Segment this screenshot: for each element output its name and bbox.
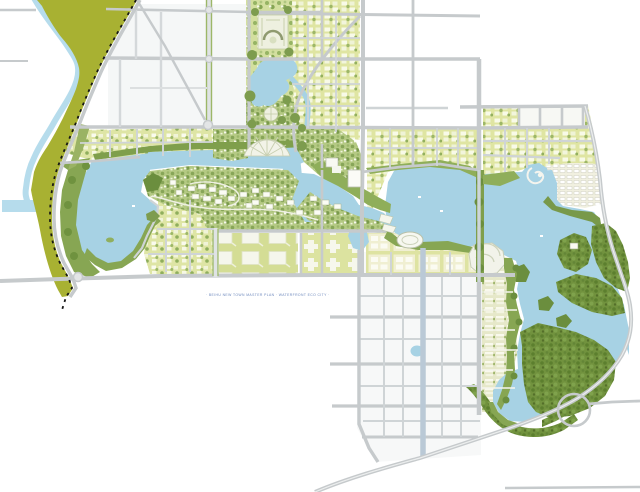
- svg-text:· BEIHU NEW TOWN MASTER PLAN ·: · BEIHU NEW TOWN MASTER PLAN · WATERFRON…: [206, 293, 330, 297]
